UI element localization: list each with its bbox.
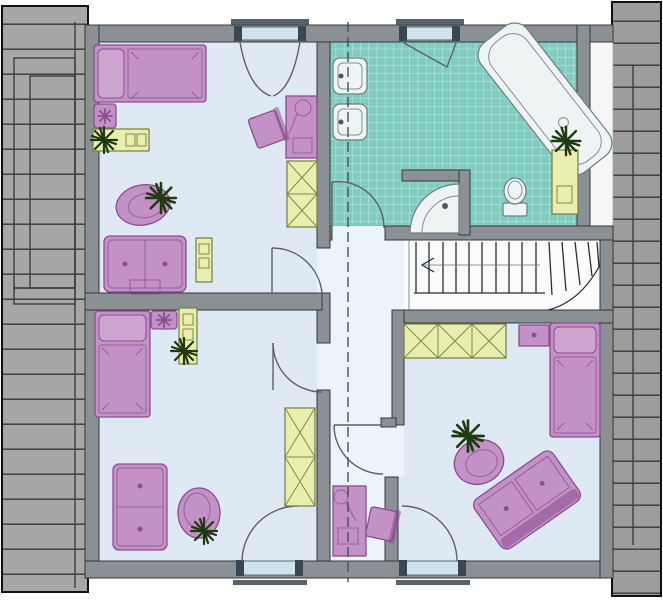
- single-bed: [94, 45, 206, 102]
- single-bed: [95, 311, 150, 417]
- single-bed: [550, 323, 600, 437]
- plant: [171, 338, 197, 364]
- shower-wall-side: [459, 170, 470, 235]
- sideboard: [113, 464, 167, 550]
- mid-wall-left-rooms: [85, 293, 322, 310]
- flower: [98, 109, 112, 123]
- bathroom-west-wall: [317, 42, 330, 248]
- roof-area-west: [2, 6, 88, 592]
- floor-plan: [0, 0, 663, 600]
- desk: [333, 486, 366, 556]
- plant: [91, 127, 117, 153]
- wardrobe: [285, 408, 315, 506]
- bath-cabinet: [552, 150, 578, 214]
- desk: [286, 96, 317, 158]
- plant: [146, 183, 176, 213]
- plant: [452, 420, 483, 451]
- nightstand: [519, 325, 549, 346]
- bedroom-southeast-north-wall: [392, 310, 613, 323]
- roof-area-east: [612, 2, 661, 596]
- toilet: [503, 178, 527, 216]
- small-shelf: [196, 238, 212, 282]
- wardrobe: [404, 324, 506, 358]
- plant: [191, 518, 217, 544]
- exterior-wall-east: [600, 237, 613, 578]
- plant: [552, 127, 581, 156]
- floor-plan-page: [0, 0, 663, 600]
- flower: [157, 313, 171, 327]
- washbasin: [333, 58, 367, 94]
- sideboard: [104, 236, 186, 294]
- exterior-wall-south: [85, 561, 613, 578]
- washbasin: [333, 104, 367, 140]
- wardrobe: [287, 161, 317, 227]
